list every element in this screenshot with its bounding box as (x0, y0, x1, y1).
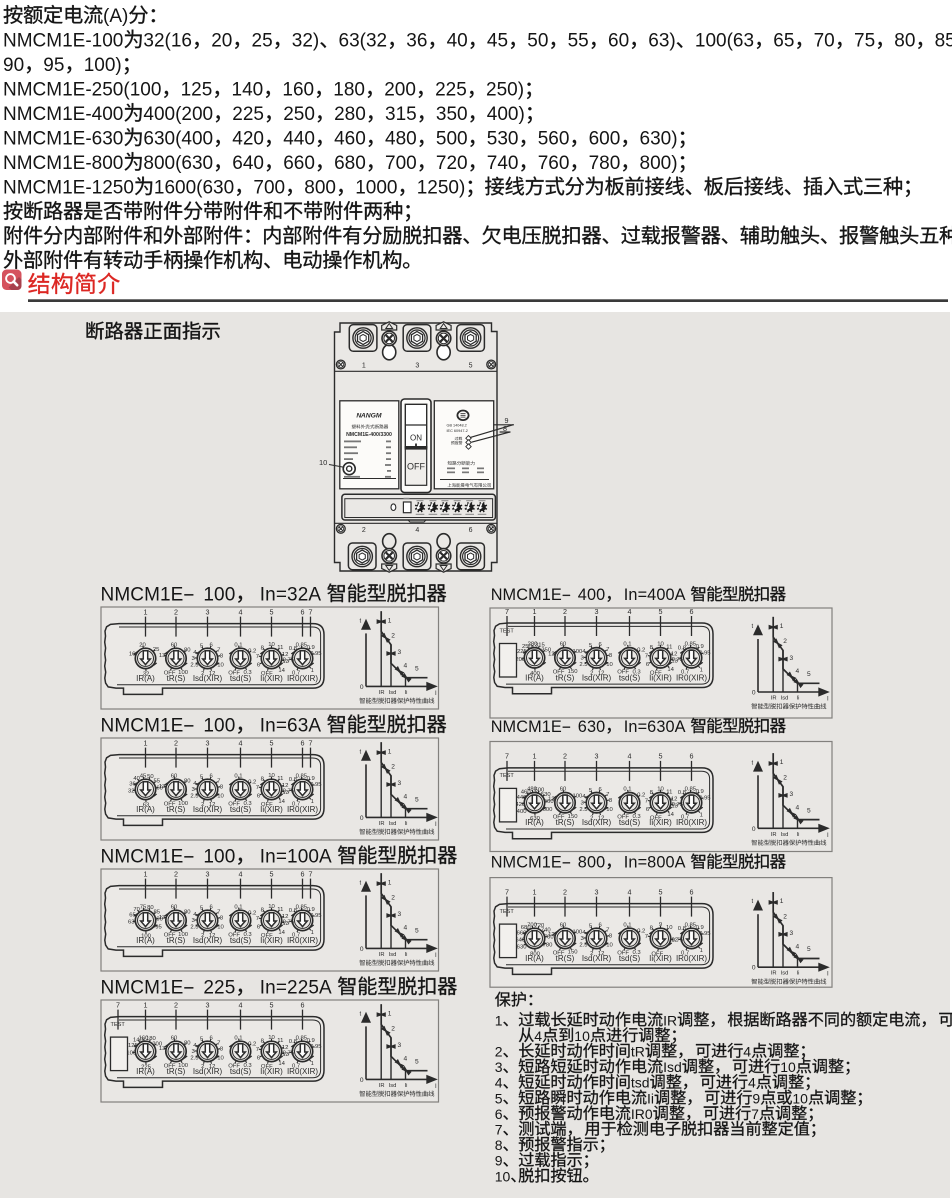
svg-text:640: 640 (232, 153, 264, 174)
svg-text:3: 3 (595, 887, 599, 896)
svg-text:Isd: Isd (781, 832, 789, 838)
svg-text:IR0(XIR): IR0(XIR) (676, 818, 707, 827)
svg-text:1: 1 (495, 1012, 503, 1028)
svg-text:11: 11 (666, 790, 672, 796)
svg-text:IR(A): IR(A) (525, 954, 544, 963)
svg-text:NMCM1E: NMCM1E (101, 847, 184, 868)
svg-text:280: 280 (334, 104, 366, 125)
svg-text:NMCM1E-630: NMCM1E-630 (3, 129, 123, 150)
svg-text:740: 740 (487, 153, 519, 174)
svg-text:60: 60 (560, 922, 567, 928)
svg-text:3: 3 (206, 1000, 210, 1009)
svg-text:0.9: 0.9 (696, 644, 704, 650)
svg-text:0.9: 0.9 (307, 776, 315, 782)
svg-text:1: 1 (388, 1010, 392, 1017)
svg-text:3: 3 (398, 911, 402, 918)
svg-text:5: 5 (807, 946, 811, 953)
svg-text:14: 14 (278, 799, 285, 805)
svg-text:0.95: 0.95 (310, 913, 322, 919)
svg-text:4: 4 (239, 738, 243, 747)
svg-text:0.1: 0.1 (234, 642, 242, 648)
svg-text:1: 1 (388, 879, 392, 886)
svg-text:tsd(S): tsd(S) (619, 818, 641, 827)
svg-text:4: 4 (796, 668, 800, 675)
svg-text:1: 1 (144, 738, 148, 747)
svg-text:100: 100 (203, 585, 235, 606)
svg-text:NMCM1E: NMCM1E (101, 585, 184, 606)
svg-text:IR0(XIR): IR0(XIR) (287, 936, 318, 945)
svg-text:780: 780 (589, 153, 621, 174)
svg-text:1: 1 (388, 617, 392, 624)
svg-text:50: 50 (527, 31, 548, 52)
svg-text:80: 80 (184, 779, 191, 785)
svg-text:5: 5 (659, 752, 663, 761)
svg-text:2: 2 (362, 527, 366, 534)
svg-text:11: 11 (277, 776, 283, 782)
svg-text:60: 60 (171, 773, 178, 779)
svg-text:Ii: Ii (405, 952, 408, 958)
svg-text:80: 80 (894, 31, 915, 52)
svg-text:630: 630 (517, 945, 528, 951)
svg-text:2.5: 2.5 (190, 663, 199, 669)
svg-text:2: 2 (174, 607, 178, 616)
svg-text:12: 12 (548, 796, 555, 802)
svg-text:7: 7 (256, 785, 259, 791)
svg-text:NMCM1E-100: NMCM1E-100 (3, 31, 123, 52)
svg-text:5: 5 (415, 1058, 419, 1065)
svg-text:63(32: 63(32 (339, 31, 388, 52)
svg-text:95: 95 (43, 55, 64, 76)
svg-text:4: 4 (415, 527, 419, 534)
svg-text:GB 14048.2: GB 14048.2 (447, 423, 467, 427)
svg-text:4: 4 (239, 1000, 243, 1009)
svg-text:36: 36 (406, 31, 427, 52)
svg-text:IR: IR (379, 690, 385, 696)
svg-text:3: 3 (595, 752, 599, 761)
svg-text:100): 100) (84, 55, 122, 76)
svg-text:11: 11 (277, 645, 283, 651)
svg-text:2.5: 2.5 (579, 943, 588, 949)
svg-text:7: 7 (256, 1047, 259, 1053)
svg-text:10: 10 (657, 787, 664, 793)
svg-text:2.5: 2.5 (190, 794, 199, 800)
svg-text:20: 20 (211, 31, 232, 52)
svg-text:680: 680 (334, 153, 366, 174)
svg-text:10: 10 (666, 925, 673, 931)
svg-text:0.75: 0.75 (283, 920, 295, 926)
svg-text:1: 1 (533, 752, 537, 761)
svg-text:7: 7 (645, 934, 648, 940)
svg-text:10: 10 (780, 1059, 796, 1075)
svg-text:660: 660 (517, 931, 528, 937)
svg-text:40: 40 (447, 31, 468, 52)
svg-text:460: 460 (334, 129, 366, 150)
svg-text:13: 13 (159, 784, 166, 790)
svg-text:1: 1 (144, 607, 148, 616)
svg-text:5: 5 (415, 665, 419, 672)
svg-text:250: 250 (283, 104, 315, 125)
svg-text:NMCM1E: NMCM1E (101, 978, 184, 999)
svg-text:6: 6 (495, 1106, 503, 1122)
svg-text:10: 10 (268, 773, 275, 779)
svg-text:20: 20 (139, 643, 146, 649)
svg-text:700: 700 (385, 153, 417, 174)
svg-text:11: 11 (666, 645, 672, 651)
svg-text:6: 6 (301, 607, 305, 616)
svg-text:6: 6 (301, 1000, 305, 1009)
svg-text:8: 8 (503, 424, 507, 433)
svg-text:225: 225 (435, 80, 467, 101)
svg-text:7: 7 (505, 607, 509, 616)
svg-text:60: 60 (560, 642, 567, 648)
svg-text:In=800A: In=800A (624, 854, 686, 872)
svg-text:6: 6 (690, 887, 694, 896)
svg-text:1: 1 (144, 1000, 148, 1009)
svg-text:Isd: Isd (781, 971, 789, 977)
svg-text:13: 13 (159, 915, 166, 921)
svg-text:Ii(XIR): Ii(XIR) (260, 674, 283, 683)
svg-text:0: 0 (752, 690, 756, 697)
svg-text:4: 4 (239, 607, 243, 616)
svg-text:4: 4 (404, 794, 408, 801)
svg-text:3: 3 (206, 738, 210, 747)
svg-text:14: 14 (278, 1061, 285, 1067)
svg-text:0.95: 0.95 (699, 795, 711, 801)
svg-text:5: 5 (495, 1090, 503, 1106)
svg-text:80: 80 (184, 648, 191, 654)
svg-text:9: 9 (659, 922, 662, 928)
svg-text:3: 3 (495, 1059, 503, 1075)
svg-text:100(63: 100(63 (695, 31, 754, 52)
svg-text:90: 90 (3, 55, 24, 76)
svg-text:0.95: 0.95 (310, 782, 322, 788)
svg-text:IR0(XIR): IR0(XIR) (676, 673, 707, 682)
svg-text:Ii(XIR): Ii(XIR) (260, 1067, 283, 1076)
svg-text:7: 7 (309, 738, 313, 747)
svg-text:NMCM1E: NMCM1E (101, 716, 184, 737)
svg-text:7: 7 (309, 869, 313, 878)
svg-text:4: 4 (628, 607, 632, 616)
svg-text:IR: IR (771, 971, 777, 977)
svg-text:IR(A): IR(A) (136, 805, 155, 814)
svg-text:0.1: 0.1 (234, 1035, 242, 1041)
svg-text:0.1: 0.1 (623, 787, 631, 793)
svg-text:3: 3 (790, 930, 794, 937)
svg-text:5: 5 (469, 362, 473, 369)
svg-text:7: 7 (505, 887, 509, 896)
svg-text:60: 60 (171, 1035, 178, 1041)
svg-text:630: 630 (578, 718, 605, 736)
svg-text:0.75: 0.75 (672, 938, 684, 944)
svg-text:tsd(S): tsd(S) (230, 674, 252, 683)
svg-text:1: 1 (780, 623, 784, 630)
svg-text:1: 1 (533, 607, 537, 616)
svg-text:ON: ON (410, 434, 422, 443)
svg-text:Ii(XIR): Ii(XIR) (649, 673, 672, 682)
svg-text:125: 125 (181, 80, 213, 101)
svg-text:tR(S): tR(S) (167, 805, 186, 814)
svg-text:5: 5 (270, 869, 274, 878)
svg-text:400): 400) (487, 104, 525, 125)
svg-text:Ii(XIR): Ii(XIR) (260, 805, 283, 814)
svg-text:7: 7 (645, 798, 648, 804)
svg-text:14: 14 (667, 812, 674, 818)
svg-text:0.95: 0.95 (699, 931, 711, 937)
svg-text:10: 10 (268, 642, 275, 648)
svg-text:0.95: 0.95 (310, 651, 322, 657)
svg-text:70: 70 (814, 31, 835, 52)
svg-text:63: 63 (128, 920, 135, 926)
svg-text:2: 2 (563, 752, 567, 761)
svg-text:10: 10 (217, 663, 224, 669)
svg-text:500: 500 (436, 129, 468, 150)
svg-text:10: 10 (268, 1035, 275, 1041)
svg-text:1: 1 (780, 898, 784, 905)
svg-text:200: 200 (384, 80, 416, 101)
svg-text:2.5: 2.5 (190, 925, 199, 931)
svg-text:Ii: Ii (405, 690, 408, 696)
svg-text:5: 5 (807, 807, 811, 814)
svg-text:tR(S): tR(S) (556, 954, 575, 963)
svg-text:IR(A): IR(A) (525, 818, 544, 827)
svg-text:140: 140 (232, 80, 264, 101)
svg-text:0.9: 0.9 (696, 925, 704, 931)
svg-text:NMCM1E-1250: NMCM1E-1250 (3, 178, 134, 199)
svg-text:NMCM1E: NMCM1E (491, 586, 562, 604)
svg-text:10: 10 (606, 807, 613, 813)
svg-text:0.75: 0.75 (283, 658, 295, 664)
svg-text:480: 480 (385, 129, 417, 150)
svg-text:3: 3 (398, 780, 402, 787)
svg-text:7: 7 (645, 653, 648, 659)
svg-text:9: 9 (495, 1153, 503, 1169)
svg-text:65: 65 (773, 31, 794, 52)
svg-text:1250): 1250) (417, 178, 466, 199)
svg-text:Isd(XIR): Isd(XIR) (582, 818, 612, 827)
svg-text:tsd(S): tsd(S) (230, 936, 252, 945)
svg-text:OFF: OFF (407, 462, 425, 472)
svg-text:10: 10 (217, 925, 224, 931)
svg-text:225: 225 (203, 978, 235, 999)
svg-text:0.75: 0.75 (672, 657, 684, 663)
svg-text:In=630A: In=630A (624, 718, 686, 736)
svg-text:2: 2 (495, 1044, 503, 1060)
svg-text:6: 6 (690, 752, 694, 761)
svg-text:Ii(XIR): Ii(XIR) (260, 936, 283, 945)
svg-text:tR(S): tR(S) (167, 1067, 186, 1076)
svg-text:7: 7 (116, 1000, 120, 1009)
svg-text:2: 2 (783, 774, 787, 781)
svg-text:45: 45 (487, 31, 508, 52)
svg-text:1: 1 (780, 759, 784, 766)
svg-text:Ii: Ii (647, 1090, 654, 1106)
svg-text:IR: IR (771, 832, 777, 838)
svg-text:10: 10 (606, 662, 613, 668)
svg-text:3: 3 (595, 607, 599, 616)
svg-text:780: 780 (543, 943, 554, 949)
svg-text:8: 8 (495, 1137, 503, 1153)
svg-text:630(400: 630(400 (143, 129, 213, 150)
svg-text:36: 36 (129, 782, 136, 788)
svg-text:4: 4 (404, 925, 408, 932)
svg-text:75: 75 (854, 31, 875, 52)
svg-text:7: 7 (495, 1122, 503, 1138)
svg-text:6: 6 (301, 738, 305, 747)
svg-text:tsd(S): tsd(S) (619, 954, 641, 963)
svg-text:IR(A): IR(A) (136, 936, 155, 945)
svg-text:1: 1 (144, 869, 148, 878)
svg-text:7: 7 (256, 654, 259, 660)
svg-text:1: 1 (388, 748, 392, 755)
svg-text:4: 4 (628, 752, 632, 761)
svg-text:350: 350 (436, 104, 468, 125)
svg-text:10: 10 (217, 794, 224, 800)
svg-text:1: 1 (533, 887, 537, 896)
svg-text:IR: IR (771, 696, 777, 702)
svg-text:5: 5 (415, 796, 419, 803)
svg-text:14: 14 (667, 667, 674, 673)
svg-text:2.5: 2.5 (579, 807, 588, 813)
svg-text:32(16: 32(16 (143, 31, 192, 52)
svg-text:400(200: 400(200 (143, 104, 213, 125)
svg-text:5: 5 (659, 887, 663, 896)
svg-text:600: 600 (543, 807, 554, 813)
svg-text:7: 7 (309, 607, 313, 616)
svg-text:3: 3 (398, 1042, 402, 1049)
svg-text:440: 440 (517, 795, 528, 801)
svg-text:Isd(XIR): Isd(XIR) (193, 674, 223, 683)
svg-text:IR0(XIR): IR0(XIR) (287, 1067, 318, 1076)
svg-text:800: 800 (578, 854, 605, 872)
svg-text:3: 3 (206, 607, 210, 616)
svg-text:Isd(XIR): Isd(XIR) (582, 673, 612, 682)
svg-text:Ii: Ii (797, 696, 800, 702)
svg-text:55: 55 (568, 31, 589, 52)
svg-text:Ii: Ii (797, 832, 800, 838)
svg-text:3: 3 (790, 791, 794, 798)
svg-text:60: 60 (608, 31, 629, 52)
svg-text:60: 60 (171, 642, 178, 648)
svg-text:85: 85 (935, 31, 952, 52)
svg-text:60: 60 (171, 904, 178, 910)
svg-text:180: 180 (333, 80, 365, 101)
svg-text:2: 2 (563, 887, 567, 896)
svg-text:Isd(XIR): Isd(XIR) (193, 936, 223, 945)
svg-text:5: 5 (659, 607, 663, 616)
svg-text:14: 14 (278, 668, 285, 674)
svg-text:tR(S): tR(S) (556, 673, 575, 682)
svg-text:2: 2 (391, 1026, 395, 1033)
svg-text:6: 6 (469, 527, 473, 534)
svg-text:0: 0 (360, 684, 364, 691)
svg-text:65: 65 (129, 913, 136, 919)
svg-text:7: 7 (505, 752, 509, 761)
svg-text:Ii: Ii (797, 971, 800, 977)
svg-text:4: 4 (796, 943, 800, 950)
svg-text:95: 95 (155, 925, 162, 931)
svg-text:2: 2 (391, 633, 395, 640)
svg-text:225: 225 (232, 104, 264, 125)
svg-text:tsd(S): tsd(S) (619, 673, 641, 682)
svg-text:Isd: Isd (389, 952, 397, 958)
svg-text:6: 6 (301, 869, 305, 878)
svg-text:3: 3 (790, 655, 794, 662)
svg-text:315: 315 (385, 104, 417, 125)
svg-text:560: 560 (538, 129, 570, 150)
svg-text:25: 25 (252, 31, 273, 52)
svg-text:0.75: 0.75 (283, 789, 295, 795)
svg-text:660: 660 (283, 153, 315, 174)
svg-text:Isd: Isd (781, 696, 789, 702)
svg-text:Ii(XIR): Ii(XIR) (649, 818, 672, 827)
svg-text:530: 530 (487, 129, 519, 150)
svg-text:IR0(XIR): IR0(XIR) (287, 674, 318, 683)
svg-text:0: 0 (360, 946, 364, 953)
svg-text:10: 10 (657, 642, 664, 648)
svg-text:2: 2 (391, 895, 395, 902)
svg-text:80: 80 (184, 910, 191, 916)
svg-text:4: 4 (495, 1075, 503, 1091)
svg-text:125: 125 (128, 1043, 139, 1049)
svg-text:NMCM1E: NMCM1E (491, 854, 562, 872)
svg-text:600: 600 (589, 129, 621, 150)
svg-text:10: 10 (268, 904, 275, 910)
svg-text:1: 1 (362, 362, 366, 369)
svg-text:160: 160 (282, 80, 314, 101)
svg-text:4: 4 (796, 805, 800, 812)
svg-text:tsd: tsd (631, 1075, 650, 1091)
svg-text:4: 4 (748, 1075, 756, 1091)
svg-text:10: 10 (792, 1090, 808, 1106)
svg-text:400: 400 (578, 586, 605, 604)
svg-text:32): 32) (292, 31, 319, 52)
svg-text:700: 700 (253, 178, 285, 199)
svg-text:0.9: 0.9 (307, 907, 315, 913)
svg-text:Isd(XIR): Isd(XIR) (193, 805, 223, 814)
svg-text:In=100A: In=100A (260, 847, 332, 868)
svg-text:0.1: 0.1 (234, 773, 242, 779)
svg-text:In=225A: In=225A (260, 978, 332, 999)
svg-text:0: 0 (360, 815, 364, 822)
svg-text:IR0(XIR): IR0(XIR) (676, 954, 707, 963)
svg-text:3: 3 (206, 869, 210, 878)
svg-text:11: 11 (277, 1038, 283, 1044)
svg-text:5: 5 (270, 1000, 274, 1009)
svg-text:Isd: Isd (663, 1059, 682, 1075)
svg-text:IR(A): IR(A) (136, 1067, 155, 1076)
svg-text:100: 100 (203, 716, 235, 737)
svg-text:0.9: 0.9 (307, 645, 315, 651)
svg-text:0.75: 0.75 (672, 802, 684, 808)
svg-text:12: 12 (548, 652, 555, 658)
svg-text:IEC 60947-2: IEC 60947-2 (447, 429, 468, 433)
svg-text:0.95: 0.95 (699, 651, 711, 657)
svg-text:10: 10 (606, 943, 613, 949)
svg-text:IR: IR (379, 821, 385, 827)
svg-text:5: 5 (270, 607, 274, 616)
svg-text:100: 100 (203, 847, 235, 868)
svg-text:3: 3 (415, 362, 419, 369)
svg-text:13: 13 (159, 653, 166, 659)
svg-text:0.95: 0.95 (310, 1044, 322, 1050)
svg-text:Ii: Ii (405, 821, 408, 827)
svg-text:tR: tR (631, 1044, 645, 1060)
svg-text:4: 4 (743, 1044, 751, 1060)
svg-text:5: 5 (415, 927, 419, 934)
svg-text:Ii: Ii (405, 1083, 408, 1089)
svg-text:440: 440 (283, 129, 315, 150)
svg-text:16: 16 (129, 652, 136, 658)
